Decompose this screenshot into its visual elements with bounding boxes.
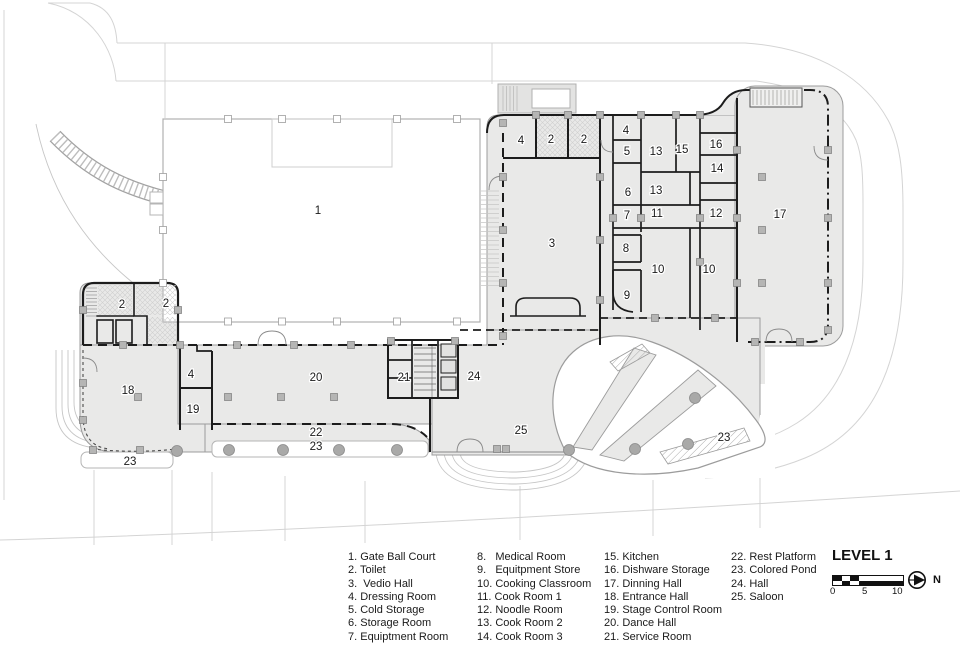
legend-item: 20. Dance Hall	[604, 617, 722, 630]
room-number-label: 16	[710, 139, 723, 151]
legend-item: 5. Cold Storage	[348, 604, 448, 617]
legend-item: 10. Cooking Classroom	[477, 578, 591, 591]
room-number-label: 5	[624, 146, 630, 158]
legend-item: 13. Cook Room 2	[477, 617, 591, 630]
legend-item: 9. Equitpment Store	[477, 564, 591, 577]
room-number-label: 12	[710, 208, 723, 220]
legend-item: 6. Storage Room	[348, 617, 448, 630]
scale-tick-5: 5	[862, 586, 867, 597]
legend-item: 23. Colored Pond	[731, 564, 817, 577]
legend-item: 4. Dressing Room	[348, 591, 448, 604]
legend-column-1: 1. Gate Ball Court2. Toilet3. Vedio Hall…	[348, 551, 448, 644]
room-number-label: 2	[163, 298, 169, 310]
room-number-label: 19	[187, 404, 200, 416]
scale-bar	[832, 575, 904, 586]
legend-item: 14. Cook Room 3	[477, 631, 591, 644]
legend-item: 12. Noodle Room	[477, 604, 591, 617]
room-number-label: 4	[188, 369, 195, 381]
legend-item: 8. Medical Room	[477, 551, 591, 564]
room-number-label: 11	[651, 208, 663, 220]
room-number-label: 23	[124, 456, 137, 468]
legend-item: 25. Saloon	[731, 591, 817, 604]
legend-item: 21. Service Room	[604, 631, 722, 644]
room-number-label: 3	[549, 238, 555, 250]
room-number-label: 21	[398, 372, 411, 384]
legend-item: 3. Vedio Hall	[348, 578, 448, 591]
scale-tick-labels: 0 5 10	[830, 586, 906, 598]
room-number-label: 17	[774, 209, 787, 221]
legend-column-2: 8. Medical Room9. Equitpment Store10. Co…	[477, 551, 591, 644]
legend-item: 1. Gate Ball Court	[348, 551, 448, 564]
room-number-label: 13	[650, 146, 663, 158]
room-number-label: 4	[518, 135, 525, 147]
room-number-label: 15	[676, 144, 689, 156]
scale-tick-0: 0	[830, 586, 835, 597]
north-indicator: N	[905, 568, 941, 592]
floor-plan-drawing: 1422345131516146137111281010917221841920…	[0, 0, 960, 646]
room-number-label: 4	[623, 125, 630, 137]
room-number-label: 22	[310, 427, 323, 439]
plan-title: LEVEL 1	[832, 547, 893, 564]
room-number-label: 8	[623, 243, 629, 255]
scale-tick-10: 10	[892, 586, 903, 597]
room-number-label: 25	[515, 425, 528, 437]
room-number-label: 9	[624, 290, 630, 302]
room-number-label: 6	[625, 187, 631, 199]
room-number-label: 10	[652, 264, 665, 276]
room-number-label: 20	[310, 372, 323, 384]
amphitheater-steps	[436, 453, 588, 490]
north-label: N	[933, 574, 941, 586]
scale-bar-checker	[833, 576, 867, 585]
room-number-label: 24	[468, 371, 481, 383]
legend-item: 7. Equiptment Room	[348, 631, 448, 644]
legend-item: 18. Entrance Hall	[604, 591, 722, 604]
legend-item: 17. Dinning Hall	[604, 578, 722, 591]
room-number-label: 7	[624, 210, 630, 222]
room-number-label: 10	[703, 264, 716, 276]
legend-item: 19. Stage Control Room	[604, 604, 722, 617]
legend-column-3: 15. Kitchen16. Dishware Storage17. Dinni…	[604, 551, 722, 644]
room-number-label: 2	[548, 134, 554, 146]
room-number-label: 1	[315, 205, 321, 217]
scale-bar-solid	[867, 576, 903, 585]
north-arrow-icon	[905, 568, 931, 592]
room-number-label: 14	[711, 163, 724, 175]
room-number-label: 13	[650, 185, 663, 197]
legend-item: 24. Hall	[731, 578, 817, 591]
room-number-label: 23	[310, 441, 323, 453]
legend-item: 11. Cook Room 1	[477, 591, 591, 604]
room-number-label: 2	[119, 299, 125, 311]
legend-item: 22. Rest Platform	[731, 551, 817, 564]
legend-item: 16. Dishware Storage	[604, 564, 722, 577]
gate-ball-court	[150, 119, 480, 322]
legend-item: 15. Kitchen	[604, 551, 722, 564]
floor-plan-page: 1422345131516146137111281010917221841920…	[0, 0, 960, 646]
legend-column-4: 22. Rest Platform23. Colored Pond24. Hal…	[731, 551, 817, 604]
room-number-label: 23	[718, 432, 731, 444]
room-number-label: 2	[581, 134, 587, 146]
legend-item: 2. Toilet	[348, 564, 448, 577]
room-number-label: 18	[122, 385, 135, 397]
